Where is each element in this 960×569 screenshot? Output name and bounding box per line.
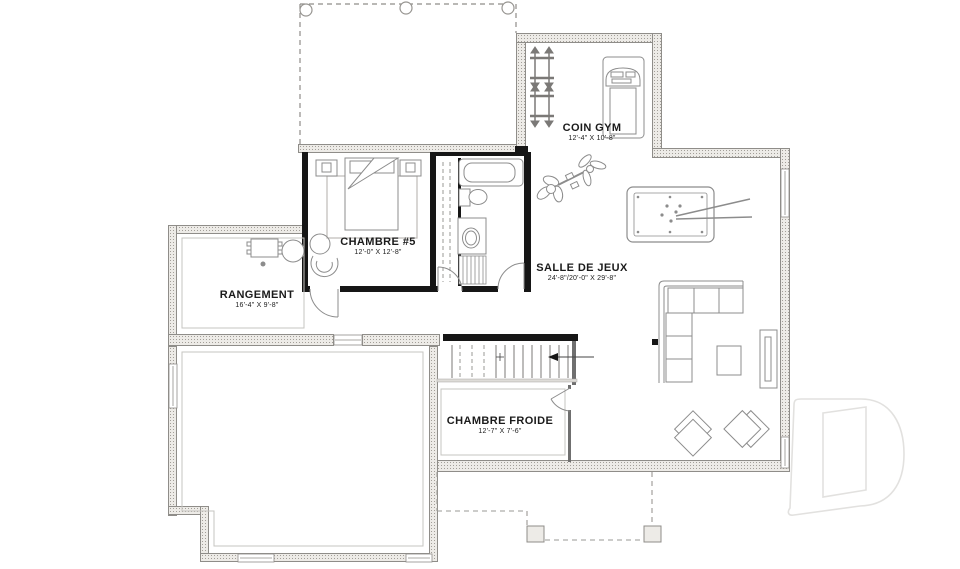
fireplace (760, 330, 777, 388)
hall-door (438, 267, 462, 291)
room-name: SALLE DE JEUX (536, 262, 627, 274)
weight-rack-1 (530, 47, 554, 89)
room-label-coin-gym: COIN GYM 12'-4" X 10'-8" (563, 122, 622, 142)
stairs-direction-arrow (496, 353, 594, 361)
closet-doors (443, 162, 450, 282)
pool-table (627, 187, 752, 242)
linen-shelves (459, 256, 486, 284)
room-label-chambre-5: CHAMBRE #5 12'-0" X 12'-8" (340, 236, 416, 256)
room-dims: 12'-0" X 12'-8" (340, 249, 416, 256)
armchair-2 (724, 406, 769, 451)
bathroom-door (498, 263, 524, 289)
armchair-1 (670, 411, 715, 456)
room-label-salle-de-jeux: SALLE DE JEUX 24'-8"/20'-0" X 29'-8" (536, 262, 627, 282)
bedroom-door (310, 289, 338, 317)
room-dims: 24'-8"/20'-0" X 29'-8" (536, 275, 627, 282)
ottoman (717, 346, 741, 375)
staircase (437, 345, 594, 382)
watermark-logo (788, 399, 904, 515)
porch-outline (300, 4, 516, 145)
room-label-rangement: RANGEMENT 16'-4" X 9'-8" (220, 289, 295, 309)
room-name: CHAMBRE FROIDE (447, 415, 553, 427)
side-table (652, 339, 658, 345)
toilet (459, 189, 487, 206)
weight-rack-2 (530, 85, 554, 127)
room-name: RANGEMENT (220, 289, 295, 301)
room-dims: 16'-4" X 9'-8" (220, 302, 295, 309)
room-name: COIN GYM (563, 122, 622, 134)
room-dims: 12'-4" X 10'-8" (563, 135, 622, 142)
bedroom-chair (310, 234, 338, 277)
bed (316, 158, 421, 230)
exercise-bike (535, 153, 607, 203)
plan-drawing (0, 0, 960, 569)
bathtub (459, 159, 523, 186)
bathroom-vanity-sink (458, 218, 486, 254)
floor-plan: COIN GYM 12'-4" X 10'-8" CHAMBRE #5 12'-… (0, 0, 960, 569)
room-label-chambre-froide: CHAMBRE FROIDE 12'-7" X 7'-6" (447, 415, 553, 435)
room-dims: 12'-7" X 7'-6" (447, 428, 553, 435)
coldroom-door (551, 388, 570, 411)
room-inset-outlines (182, 238, 565, 546)
room-name: CHAMBRE #5 (340, 236, 416, 248)
storage-desk (247, 239, 282, 257)
